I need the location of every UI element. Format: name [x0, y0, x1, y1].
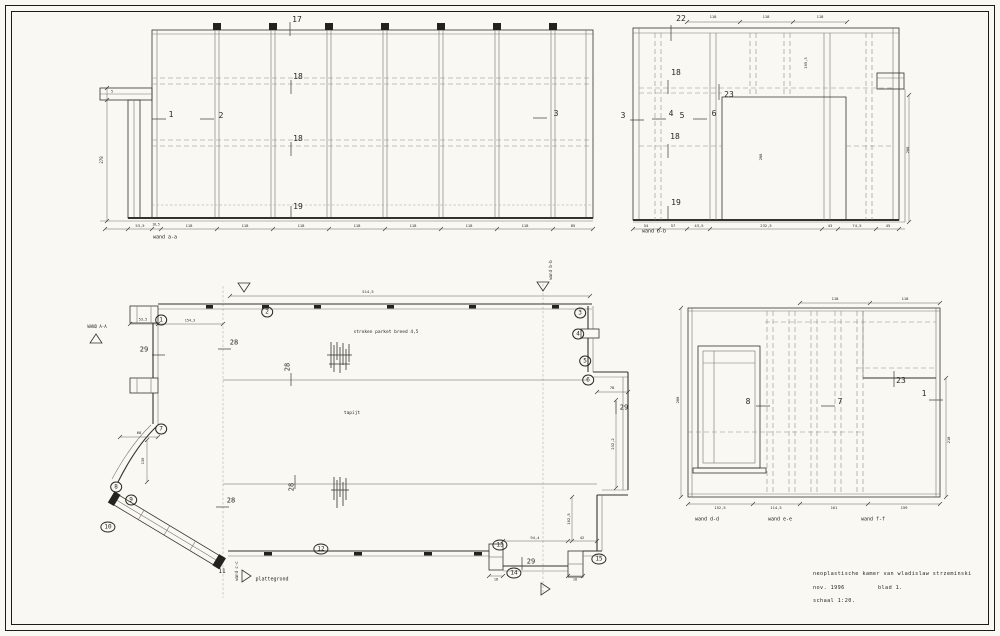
drawing-scale: schaal 1:20.	[813, 598, 855, 604]
dim-height: 278	[100, 156, 104, 163]
pos-18-lower: 18	[670, 133, 680, 141]
pos-2: 2	[219, 112, 224, 120]
dim: 514,5	[362, 290, 373, 294]
dim: 130	[141, 458, 145, 465]
drawing-date: nov. 1996	[813, 585, 845, 591]
dim: 18	[573, 578, 577, 582]
pos-6: 6	[582, 375, 594, 386]
pos-28: 28	[227, 498, 235, 505]
dim: 74,5	[852, 224, 861, 228]
dim: 45	[886, 224, 891, 228]
pos-15: 15	[591, 554, 606, 565]
dim: 85	[571, 224, 576, 228]
dim: 118	[186, 224, 193, 228]
drawing-title: neoplastische kamer van wladislaw strzem…	[813, 571, 972, 577]
dim: 118	[902, 297, 909, 301]
pos-29: 29	[527, 559, 535, 566]
pos-2: 2	[261, 307, 273, 318]
dim: 288	[906, 147, 910, 154]
section-a-label: WAND A-A	[87, 325, 106, 329]
pos-8: 8	[110, 482, 122, 493]
pos-4: 4	[572, 329, 584, 340]
dim: 118	[298, 224, 305, 228]
dim: 118	[710, 15, 717, 19]
pos-18-lower: 18	[293, 135, 303, 143]
pos-5: 5	[579, 356, 591, 367]
pos-1: 1	[169, 111, 174, 119]
pos-11: 11	[218, 569, 225, 575]
dim: 118	[832, 297, 839, 301]
sheet-number: blad 1.	[878, 585, 903, 591]
dim: 154,3	[185, 319, 196, 323]
pos-7: 7	[838, 398, 843, 406]
drawing-sheet: 17181819123527853,518,511811811811811811…	[0, 0, 1000, 636]
pos-19: 19	[293, 203, 303, 211]
pos-10: 10	[100, 522, 115, 533]
dim: 118	[522, 224, 529, 228]
pos-1: 1	[155, 315, 167, 326]
dim: 5	[111, 90, 113, 94]
pos-29: 29	[140, 347, 148, 354]
dim: 57	[671, 224, 676, 228]
pos-18-upper: 18	[671, 69, 681, 77]
pos-28: 28	[289, 483, 296, 491]
dim: 118	[817, 15, 824, 19]
dim: 102,5	[567, 513, 571, 524]
dim: 159	[901, 506, 908, 510]
dim: 18,5	[152, 223, 160, 226]
dim: 118	[410, 224, 417, 228]
dim: 42	[580, 536, 585, 540]
pos-7: 7	[155, 424, 167, 435]
dim: 53,5	[135, 224, 144, 228]
wall-a-label: wand a-a	[153, 236, 177, 241]
section-b-label: wand b-b	[549, 260, 553, 279]
wall-b-label: wand b-b	[642, 230, 666, 235]
dim: 53,5	[139, 318, 147, 322]
pos-28: 28	[285, 363, 292, 371]
pos-3: 3	[574, 308, 586, 319]
pos-13: 13	[492, 540, 507, 551]
dim: 94,4	[530, 536, 539, 540]
pos-29: 29	[620, 405, 628, 412]
dim: 152,5	[714, 506, 725, 510]
dim: 43	[828, 224, 833, 228]
dim: 78	[610, 386, 615, 390]
floor-note-parquet: stroken parket breed 4,5	[353, 331, 418, 336]
dim: 232,2	[611, 438, 615, 449]
dim: 161	[831, 506, 838, 510]
pos-9: 9	[125, 495, 137, 506]
dim: 54	[644, 224, 649, 228]
pos-4: 4	[669, 110, 674, 118]
pos-23: 23	[896, 377, 906, 385]
dim: 68	[137, 431, 142, 435]
dim: 288	[676, 397, 680, 404]
floor-note-carpet: tapijt	[344, 412, 360, 417]
plan-label: plattegrond	[255, 578, 288, 583]
pos-17: 17	[292, 16, 302, 24]
pos-23: 23	[724, 91, 734, 99]
pos-28: 28	[230, 340, 238, 347]
pos-8: 8	[746, 398, 751, 406]
dim: 232,5	[760, 224, 771, 228]
dim: 43,5	[694, 224, 703, 228]
dim: 118	[354, 224, 361, 228]
dim: 118	[242, 224, 249, 228]
dim: 288	[759, 154, 763, 161]
pos-19: 19	[671, 199, 681, 207]
dim: 218	[947, 437, 951, 444]
dim: 118	[466, 224, 473, 228]
pos-3: 3	[621, 112, 626, 120]
dim: 118	[763, 15, 770, 19]
pos-22: 22	[676, 15, 686, 23]
pos-18-upper: 18	[293, 73, 303, 81]
dim: 18	[494, 578, 498, 582]
pos-3: 3	[554, 110, 559, 118]
pos-6: 6	[712, 110, 717, 118]
dim: 114,5	[770, 506, 781, 510]
wall-e-label: wand e-e	[768, 518, 792, 523]
dim: 105,3	[804, 57, 808, 68]
pos-12: 12	[313, 544, 328, 555]
pos-1: 1	[922, 390, 927, 398]
wall-d-label: wand d-d	[695, 518, 719, 523]
pos-5: 5	[680, 112, 685, 120]
pos-14: 14	[506, 568, 521, 579]
section-c-label: wand c-c	[235, 561, 239, 580]
wall-f-label: wand f-f	[861, 518, 885, 523]
annotation-layer: 17181819123527853,518,511811811811811811…	[0, 0, 1000, 636]
